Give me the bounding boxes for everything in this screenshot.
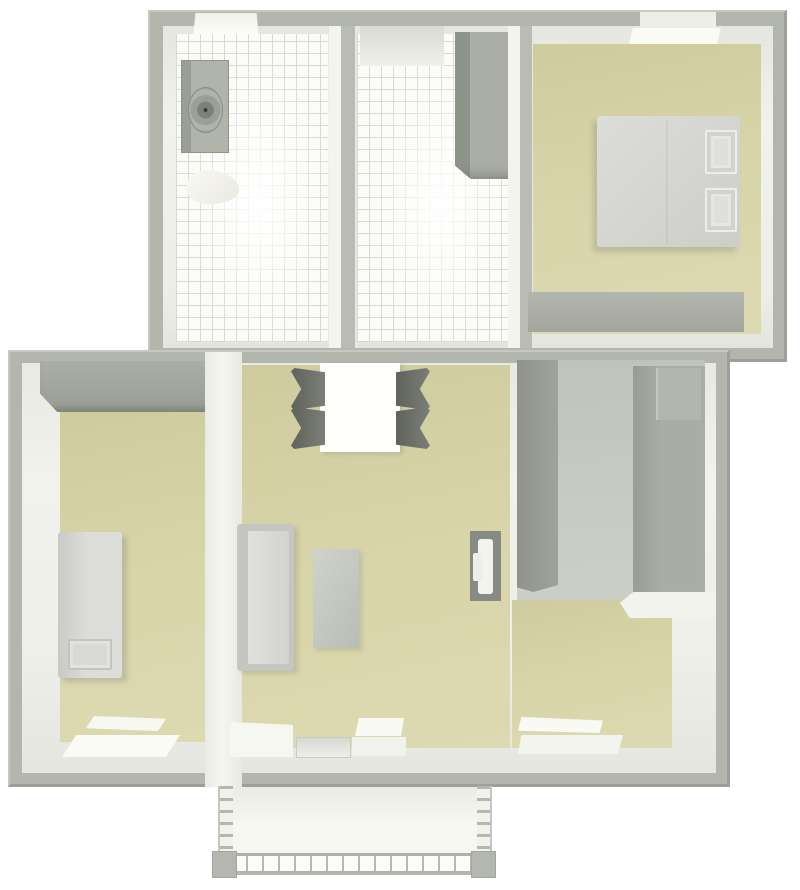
coffee-table — [313, 549, 359, 648]
living-window-sill — [230, 722, 293, 757]
left-bedroom-window-sill — [86, 716, 166, 731]
storage-partial-wall — [620, 592, 716, 618]
balcony-door-mat — [355, 718, 404, 736]
bedroom-low-dresser — [528, 292, 744, 332]
balcony-corner-post — [212, 851, 237, 878]
balcony-side-rail — [218, 786, 233, 856]
floorplan-render — [0, 0, 800, 890]
bed-pillow — [705, 188, 737, 232]
living-window-sill — [518, 735, 623, 754]
balcony-lattice-railing — [230, 853, 480, 875]
balcony-corner-post — [471, 851, 496, 878]
tv-screen-base — [473, 553, 482, 581]
balcony-door — [296, 737, 351, 758]
dining-table — [320, 363, 400, 452]
storage-wardrobe-strip — [517, 360, 558, 592]
bathroom-hallway-wall — [329, 26, 357, 348]
bed-pillow — [705, 130, 737, 174]
single-bed — [58, 532, 122, 678]
left-bedroom-window-sill — [62, 735, 180, 757]
hallway-entry-niche — [360, 26, 444, 66]
washer-door-icon — [188, 87, 223, 133]
balcony-side-rail — [477, 786, 492, 856]
sofa — [237, 524, 294, 671]
storage-top-box — [656, 368, 701, 420]
hallway-tall-cabinet — [455, 32, 508, 179]
left-bedroom-wardrobe — [40, 361, 212, 412]
balcony-door-threshold — [352, 737, 406, 756]
washing-machine — [181, 60, 229, 153]
balcony-floor — [233, 787, 477, 855]
